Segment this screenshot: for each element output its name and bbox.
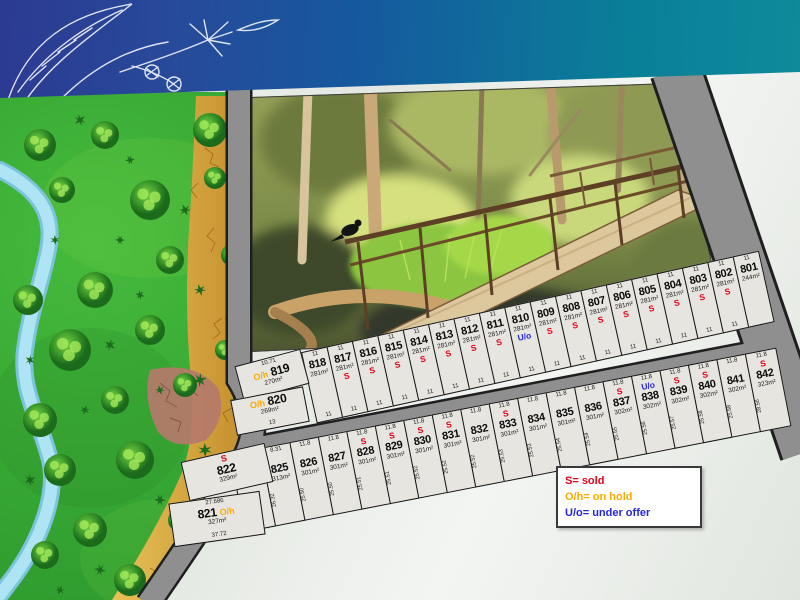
lot-dim: 11 — [341, 403, 367, 415]
lot-status: S — [419, 354, 426, 364]
lot-dim: 11 — [417, 387, 443, 399]
lot-dim: 28.56 — [755, 399, 764, 414]
lot-status: O/h — [219, 507, 235, 518]
lot-dim: 11 — [494, 370, 520, 382]
lot-status: S — [648, 304, 655, 314]
lot-dim: 11 — [468, 375, 494, 387]
lot-dim: 25.52 — [470, 454, 479, 469]
lot-dim: 25.52 — [441, 460, 450, 475]
lot-dim: 11 — [697, 325, 723, 337]
lot-dim: 25.51 — [385, 471, 394, 486]
lot-status: S — [445, 349, 452, 359]
lot-status: S — [368, 366, 375, 376]
legend-sold: S= sold — [565, 473, 693, 489]
lot-status — [751, 282, 755, 291]
lot-status: S — [495, 338, 502, 348]
lot-dim: 25.57 — [669, 415, 678, 430]
lot-dim: 11 — [620, 342, 646, 354]
lot-dim: 11 — [443, 381, 469, 393]
lot-dim: 11 — [646, 336, 672, 348]
lot-dim: 37.72 — [174, 526, 264, 545]
lot-dim: 25.58 — [698, 410, 707, 425]
legend-under-offer: U/o= under offer — [565, 505, 693, 521]
lot-status: S — [394, 360, 401, 370]
lot-status: S — [698, 293, 705, 303]
lot-dim: 11 — [570, 353, 596, 365]
lot-dim: 25.53 — [527, 443, 536, 458]
lot-dim: 13 — [236, 413, 308, 434]
lot-status: S — [622, 309, 629, 319]
lot-status: S — [597, 315, 604, 325]
lot-dim: 25.51 — [356, 476, 365, 491]
lot-status: S — [343, 371, 350, 381]
lot-dim — [747, 313, 773, 325]
lot-dim: 11 — [519, 364, 545, 376]
legend-on-hold: O/h= on hold — [565, 489, 693, 505]
lot-dim: 25.56 — [641, 421, 650, 436]
lot-dim: 11 — [367, 398, 393, 410]
lot-status: S — [572, 321, 579, 331]
lot-dim: 25.58 — [726, 404, 735, 419]
lot-dim: 11 — [316, 409, 342, 421]
legend: S= sold O/h= on hold U/o= under offer — [556, 466, 702, 528]
lot-dim: 11 — [722, 319, 748, 331]
lot-status: S — [724, 287, 731, 297]
lot-dim: 11 — [392, 392, 418, 404]
lot-dim: 11 — [544, 358, 570, 370]
estate-plan: 11818281m² 1111817281m²S1111816281m²S111… — [0, 0, 800, 600]
lot-dim: 11 — [671, 330, 697, 342]
lot-dim: 25.50 — [328, 482, 337, 497]
lot-dim: 11 — [595, 347, 621, 359]
lot-dim: 25.54 — [584, 432, 593, 447]
lot-dim: 26.32 — [270, 493, 279, 508]
lot-dim: 25.53 — [498, 448, 507, 463]
lot-status: U/o — [517, 331, 532, 343]
lot-dim: 25.50 — [299, 487, 308, 502]
lot-status: S — [673, 298, 680, 308]
lot-area: 327m² — [208, 517, 227, 527]
lot-status: S — [470, 343, 477, 353]
lot-dim: 25.52 — [413, 465, 422, 480]
lot-status — [319, 377, 323, 386]
lot-dim: 25.54 — [555, 437, 564, 452]
lot-status: S — [546, 326, 553, 336]
lot-dim: 25.55 — [612, 426, 621, 441]
